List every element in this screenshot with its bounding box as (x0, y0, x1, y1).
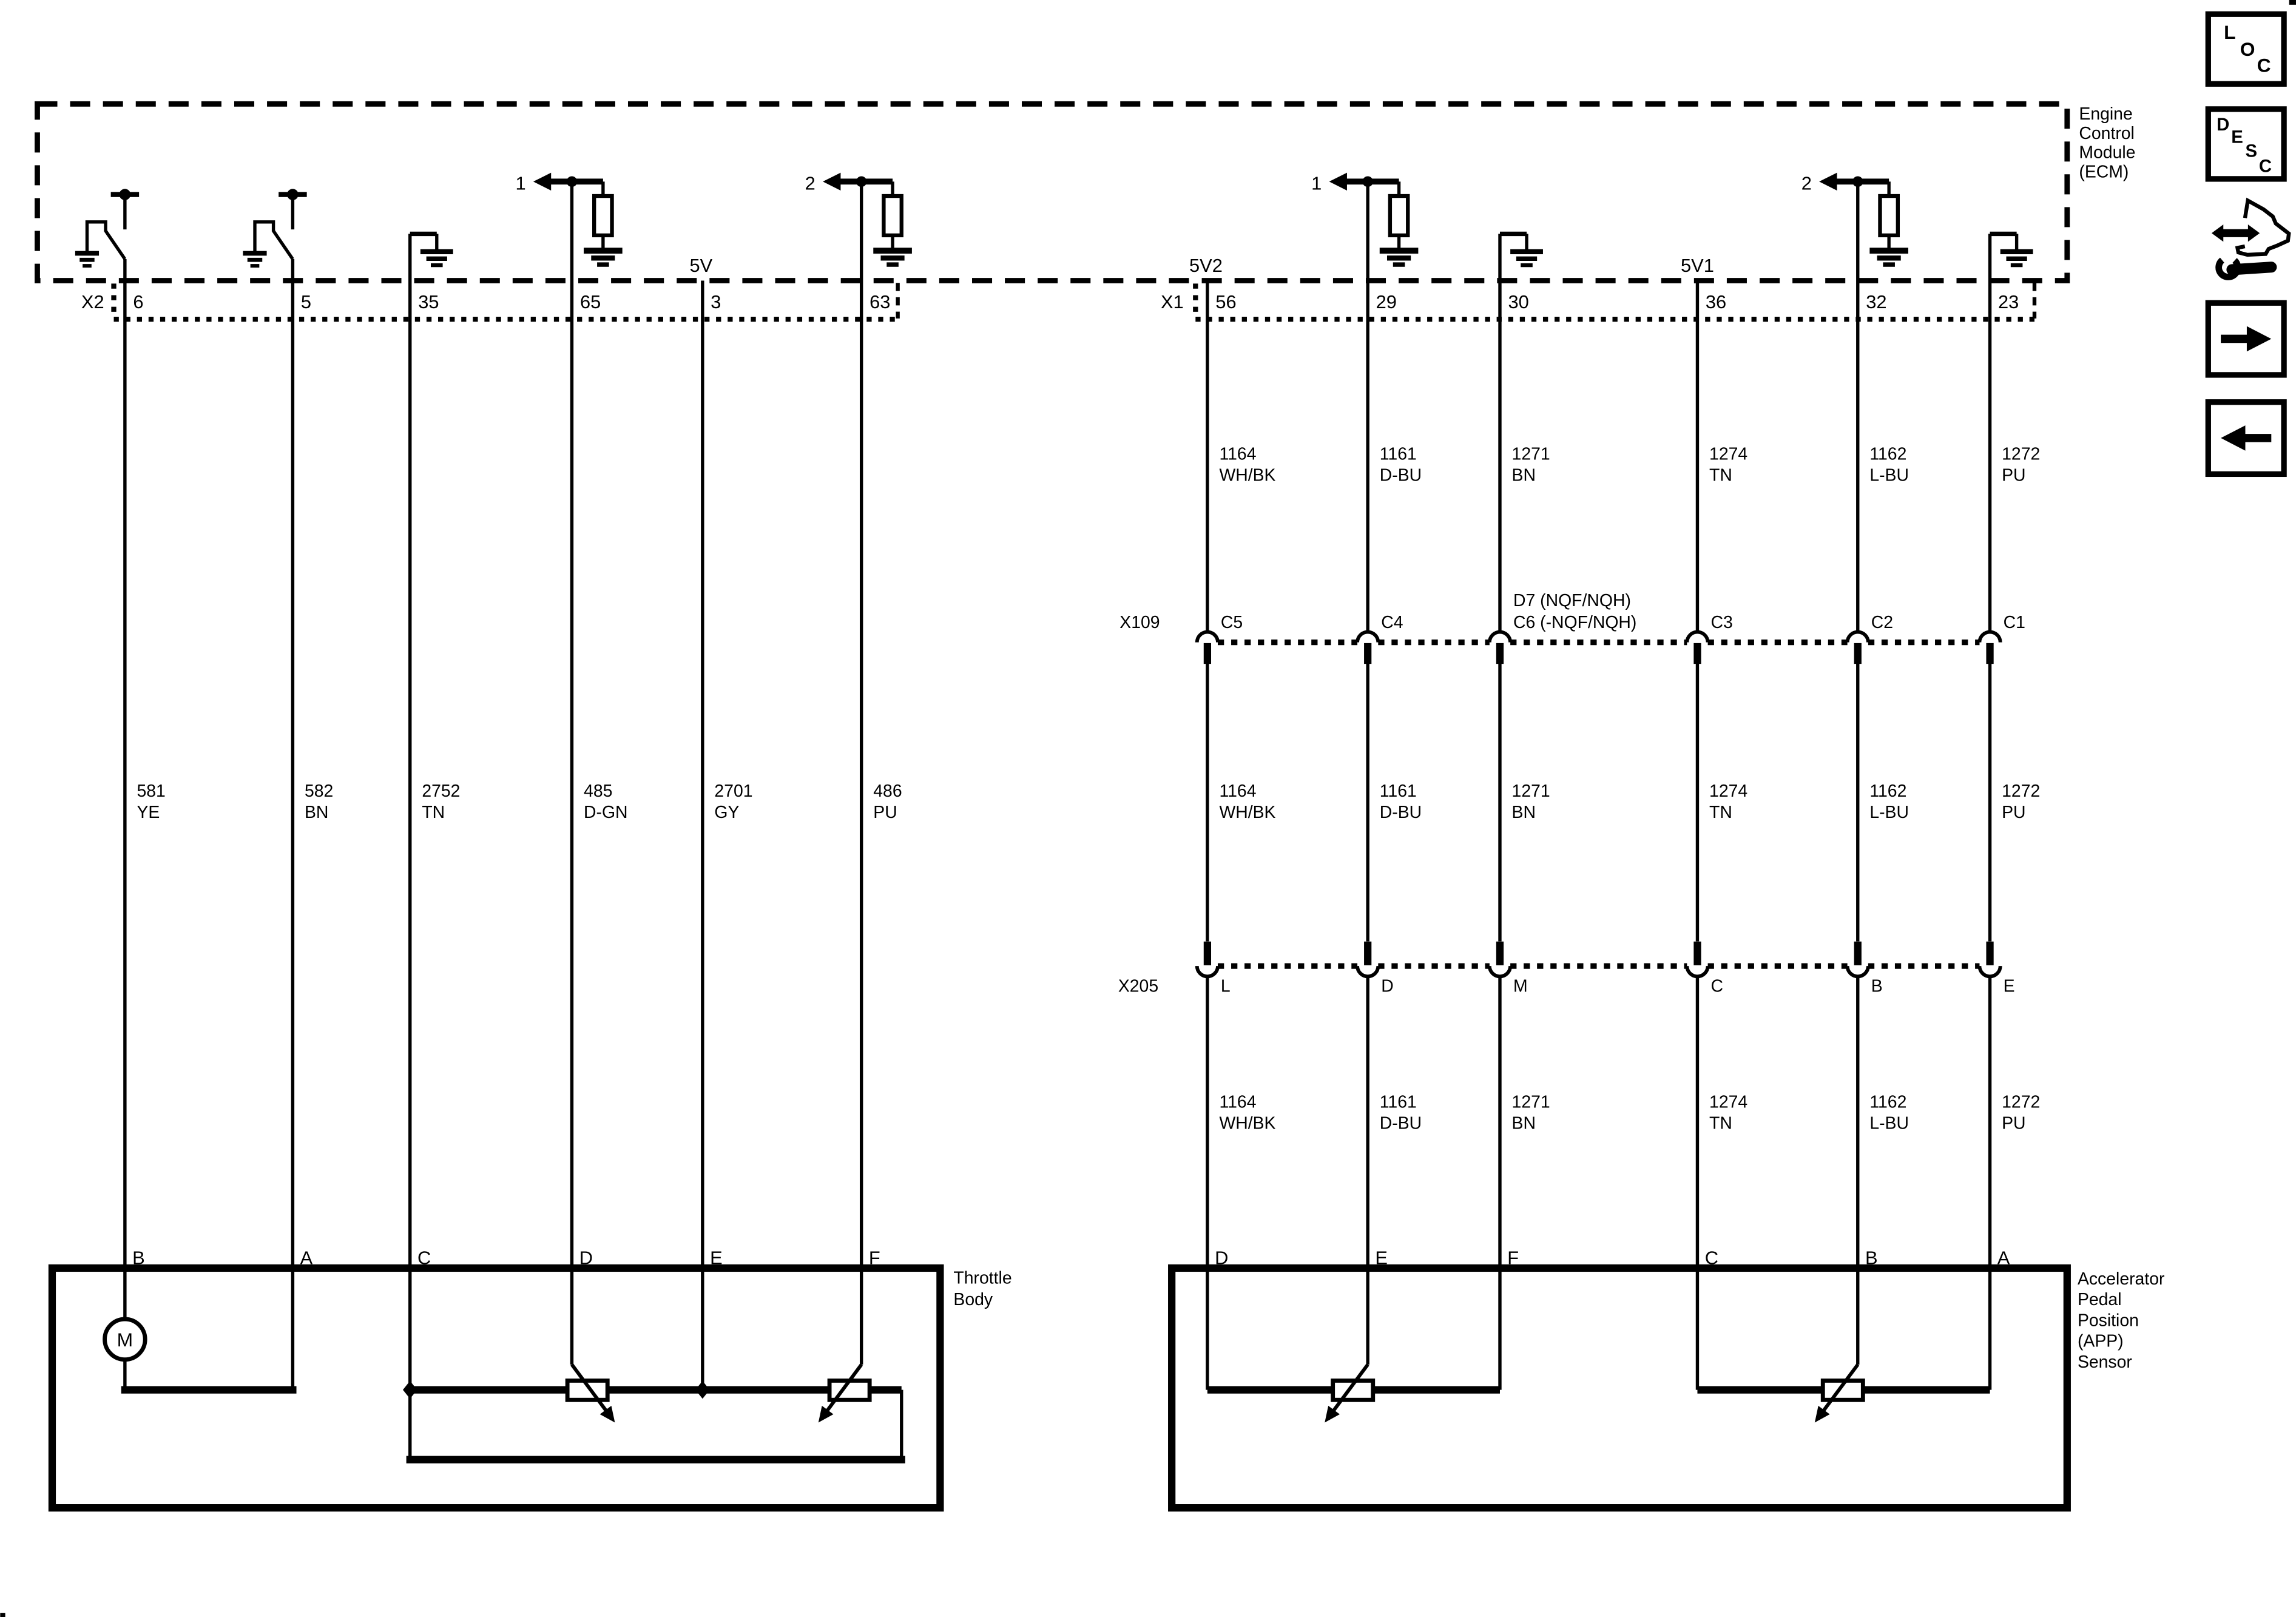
nav-forward-button[interactable] (2208, 303, 2284, 375)
offpage-arrow-icon[interactable] (1329, 173, 1347, 191)
wire-circuit: 582 (305, 781, 333, 801)
svg-text:1274: 1274 (1709, 781, 1747, 801)
wire-color: D-GN (584, 803, 628, 822)
cavity-label: C1 (2004, 613, 2025, 632)
loc-button[interactable]: L O C (2208, 14, 2284, 84)
wire-circuit: 485 (584, 781, 612, 801)
svg-text:TN: TN (1709, 465, 1732, 485)
svg-text:PU: PU (2002, 1114, 2025, 1133)
component-pin-letter: E (710, 1247, 723, 1268)
nav-back-button[interactable] (2208, 402, 2284, 474)
wire-1161-dbu (1357, 181, 1378, 1268)
offpage-arrow-icon[interactable] (823, 173, 840, 191)
cavity-label: L (1221, 977, 1231, 996)
page-mark (2289, 0, 2296, 5)
inline-connector-icon (1197, 632, 1218, 664)
pin-number: 3 (711, 291, 721, 312)
component-name: Pedal (2078, 1290, 2122, 1309)
wire-2752-tn: 2752 TN (410, 234, 461, 1268)
svg-text:1162: 1162 (1869, 1093, 1906, 1112)
pin-number: 5 (301, 291, 311, 312)
wire-color: PU (873, 803, 897, 822)
svg-text:1274: 1274 (1709, 1093, 1747, 1112)
wire-circuit: 486 (873, 781, 902, 801)
wire-labels-row3: 1164 WH/BK 1161 D-BU 1271 BN 1274 TN 116… (1219, 1093, 2040, 1133)
svg-text:BN: BN (1512, 465, 1536, 485)
svg-text:1271: 1271 (1512, 1093, 1550, 1112)
ecm-boundary-box (37, 104, 2067, 280)
svg-text:1164: 1164 (1219, 781, 1256, 801)
svg-text:D-BU: D-BU (1380, 803, 1422, 822)
offpage-ref-number: 2 (1801, 173, 1812, 194)
wire-2701-gy: 2701 GY (703, 281, 753, 1268)
component-pin-letter: B (1865, 1247, 1878, 1268)
ecm-pullup-offpage-1: 1 (515, 173, 622, 265)
connector-name: X109 (1119, 613, 1160, 632)
resistor-icon (1880, 196, 1897, 235)
inline-connector-icon (1687, 632, 1707, 664)
component-name: Position (2078, 1311, 2139, 1330)
offpage-arrow-icon[interactable] (533, 173, 551, 191)
pin-number: 30 (1508, 291, 1528, 312)
ecm-name-label: Engine Control Module (ECM) (2079, 104, 2135, 181)
wire-color: YE (137, 803, 160, 822)
connector-name: X205 (1118, 977, 1158, 996)
connector-name: X1 (1161, 291, 1184, 312)
wire-1162-lbu (1848, 181, 1868, 1268)
offpage-arrow-icon[interactable] (1819, 173, 1837, 191)
pin-number: 32 (1866, 291, 1886, 312)
svg-text:1272: 1272 (2002, 1093, 2040, 1112)
wiring-diagram-canvas: 1 5V 2 5V2 1 5V1 2 (0, 0, 2296, 1617)
component-pin-letter: B (132, 1247, 145, 1268)
ecm-switch-to-ground-icon (243, 189, 306, 266)
connector-strip-x2: X2 6 5 35 65 3 63 (81, 283, 898, 319)
svg-text:D: D (2217, 115, 2229, 135)
wire-color: BN (305, 803, 328, 822)
ecm-ground-icon (1990, 234, 2033, 265)
svg-text:L: L (2224, 21, 2235, 43)
cavity-label: C4 (1381, 613, 1403, 632)
junction-diamond (695, 1381, 709, 1399)
svg-text:WH/BK: WH/BK (1219, 803, 1275, 822)
inline-connector-icon (1490, 632, 1510, 664)
connector-name: X2 (81, 291, 104, 312)
inline-connector-icon (1848, 632, 1868, 664)
svg-text:D-BU: D-BU (1380, 1114, 1422, 1133)
cavity-label: C6 (-NQF/NQH) (1513, 613, 1636, 632)
ecm-switch-to-ground-icon (75, 189, 139, 266)
svg-text:PU: PU (2002, 465, 2025, 485)
svg-text:L-BU: L-BU (1869, 1114, 1909, 1133)
ecm-pullup-offpage-2: 2 (1801, 173, 1908, 265)
svg-text:1162: 1162 (1869, 781, 1906, 801)
desc-button[interactable]: D E S C (2208, 109, 2284, 179)
wire-1164-whbk (1197, 281, 1218, 1268)
wire-1274-tn (1687, 281, 1707, 1268)
svg-text:1161: 1161 (1380, 1093, 1417, 1112)
ecm-ground-icon (410, 234, 453, 265)
resistor-icon (883, 196, 901, 235)
svg-text:(ECM): (ECM) (2079, 162, 2129, 181)
component-pin-letter: D (1215, 1247, 1228, 1268)
svg-text:1164: 1164 (1219, 1093, 1256, 1112)
cavity-label: B (1871, 977, 1883, 996)
svg-text:S: S (2245, 141, 2257, 161)
svg-text:1271: 1271 (1512, 781, 1550, 801)
svg-text:L-BU: L-BU (1869, 803, 1909, 822)
svg-text:BN: BN (1512, 1114, 1536, 1133)
cavity-label: C3 (1710, 613, 1732, 632)
wire-1272-pu (1979, 234, 2000, 1268)
pin-number: 63 (869, 291, 890, 312)
motor-label: M (117, 1329, 133, 1351)
inline-connector-x205: X205 L D M C B E (1118, 966, 2015, 996)
svg-text:1274: 1274 (1709, 444, 1747, 464)
svg-text:1162: 1162 (1869, 444, 1906, 464)
cavity-label: D7 (NQF/NQH) (1513, 591, 1631, 610)
glove-outline-icon (2238, 201, 2289, 255)
svg-text:D-BU: D-BU (1380, 465, 1422, 485)
inline-connector-icon (1979, 632, 2000, 664)
offpage-ref-number: 1 (515, 173, 525, 194)
svg-text:PU: PU (2002, 803, 2025, 822)
component-pin-letter: F (869, 1247, 880, 1268)
svg-text:L-BU: L-BU (1869, 465, 1909, 485)
inline-connector-icon (1979, 942, 2000, 977)
svg-text:E: E (2231, 127, 2243, 147)
connector-end-view-tool-icon[interactable] (2212, 201, 2289, 277)
supply-5v-label: 5V (690, 255, 713, 276)
svg-text:WH/BK: WH/BK (1219, 465, 1275, 485)
wire-485-dgn: 485 D-GN (572, 181, 627, 1268)
svg-text:1161: 1161 (1380, 444, 1417, 464)
component-name: Body (953, 1290, 993, 1309)
inline-connector-icon (1848, 942, 1868, 977)
svg-text:1272: 1272 (2002, 781, 2040, 801)
resistor-icon (594, 196, 612, 235)
component-name: Accelerator (2078, 1269, 2165, 1289)
connector-strip-x1: X1 56 29 30 36 32 23 (1161, 283, 2034, 319)
cavity-label: C (1710, 977, 1723, 996)
wire-color: GY (714, 803, 739, 822)
component-pin-letter: A (300, 1247, 313, 1268)
page-mark (0, 1613, 5, 1617)
inline-connector-icon (1357, 632, 1378, 664)
svg-text:1272: 1272 (2002, 444, 2040, 464)
inline-connector-icon (1490, 942, 1510, 977)
svg-text:Module: Module (2079, 143, 2135, 163)
component-pin-letter: F (1507, 1247, 1519, 1268)
supply-5v2-label: 5V2 (1189, 255, 1223, 276)
wire-circuit: 2701 (714, 781, 752, 801)
component-pin-letter: E (1375, 1247, 1388, 1268)
pin-number: 29 (1376, 291, 1397, 312)
inline-connector-icon (1357, 942, 1378, 977)
pin-number: 36 (1706, 291, 1726, 312)
pin-number: 35 (418, 291, 439, 312)
svg-text:C: C (2257, 55, 2271, 76)
ecm-pullup-offpage-1: 1 (1311, 173, 1418, 265)
svg-text:Engine: Engine (2079, 104, 2132, 124)
component-pin-letter: C (417, 1247, 431, 1268)
svg-text:1271: 1271 (1512, 444, 1550, 464)
component-name: Throttle (953, 1269, 1011, 1288)
wire-labels-row1: 1164 WH/BK 1161 D-BU 1271 BN 1274 TN 116… (1219, 444, 2040, 485)
component-pin-letter: A (1997, 1247, 2010, 1268)
pin-number: 23 (1998, 291, 2019, 312)
pin-number: 56 (1215, 291, 1236, 312)
offpage-ref-number: 2 (805, 173, 815, 194)
cavity-label: C2 (1871, 613, 1893, 632)
svg-text:BN: BN (1512, 803, 1536, 822)
component-name: Sensor (2078, 1352, 2132, 1372)
pin-number: 6 (133, 291, 143, 312)
wire-labels-row2: 1164 WH/BK 1161 D-BU 1271 BN 1274 TN 116… (1219, 781, 2040, 822)
throttle-body-component: B A C D E F M Throttle Body (52, 1247, 1012, 1508)
inline-connector-x109: X109 C5 C4 D7 (NQF/NQH) C6 (-NQF/NQH) C3… (1119, 591, 2025, 642)
svg-text:TN: TN (1709, 1114, 1732, 1133)
wire-color: TN (422, 803, 445, 822)
svg-text:Control: Control (2079, 124, 2134, 143)
component-pin-letter: D (579, 1247, 593, 1268)
cavity-label: C5 (1221, 613, 1243, 632)
svg-text:TN: TN (1709, 803, 1732, 822)
wire-circuit: 2752 (422, 781, 460, 801)
inline-connector-icon (1687, 942, 1707, 977)
svg-text:C: C (2259, 156, 2272, 176)
svg-text:1164: 1164 (1219, 444, 1256, 464)
wire-486-pu: 486 PU (862, 181, 902, 1268)
inline-connector-icon (1197, 942, 1218, 977)
cavity-label: M (1513, 977, 1528, 996)
ecm-ground-icon (1500, 234, 1543, 265)
svg-text:1161: 1161 (1380, 781, 1417, 801)
app-sensor-component: D E F C B A Accelerator Pedal Position (… (1172, 1247, 2164, 1508)
wire-circuit: 581 (137, 781, 165, 801)
component-pin-letter: C (1705, 1247, 1718, 1268)
cavity-label: D (1381, 977, 1394, 996)
supply-5v1-label: 5V1 (1681, 255, 1714, 276)
ecm-pullup-offpage-2: 2 (805, 173, 912, 265)
resistor-icon (1390, 196, 1408, 235)
wire-1271-bn (1490, 234, 1510, 1268)
component-name: (APP) (2078, 1332, 2124, 1351)
offpage-ref-number: 1 (1311, 173, 1322, 194)
svg-text:O: O (2240, 38, 2255, 60)
junction-diamond (403, 1381, 417, 1399)
svg-text:WH/BK: WH/BK (1219, 1114, 1275, 1133)
pin-number: 65 (580, 291, 601, 312)
wire-581-ye: 581 YE (125, 259, 166, 1268)
cavity-label: E (2004, 977, 2015, 996)
wire-582-bn: 582 BN (292, 259, 333, 1268)
